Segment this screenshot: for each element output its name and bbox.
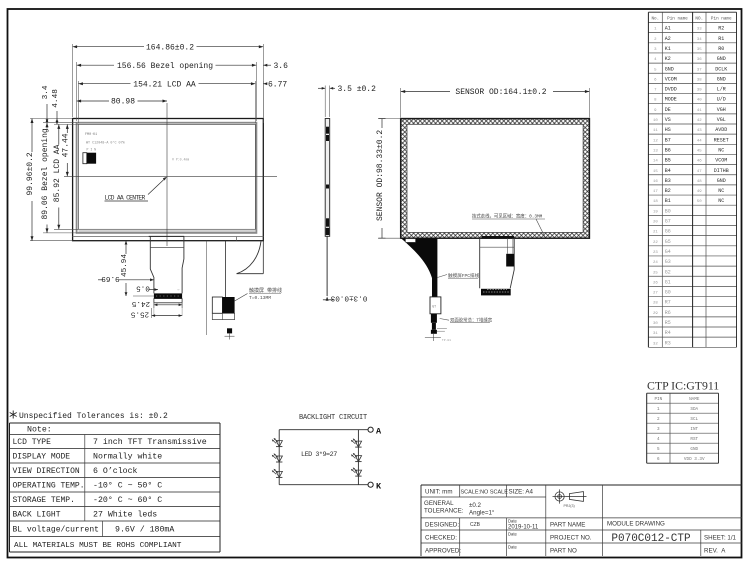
svg-text:GND: GND: [717, 56, 726, 62]
svg-text:R7: R7: [665, 300, 671, 306]
svg-text:技式走线，可见区域：宽度：0.3MM: 技式走线，可见区域：宽度：0.3MM: [472, 213, 543, 220]
svg-text:INT: INT: [690, 427, 698, 432]
svg-text:MODULE DRAWING: MODULE DRAWING: [607, 521, 665, 528]
svg-text:CTP IC:GT911: CTP IC:GT911: [647, 379, 719, 393]
svg-text:89.06 Bezel opening: 89.06 Bezel opening: [41, 128, 50, 219]
svg-text:Unspecified Tolerances is: ±0.: Unspecified Tolerances is: ±0.2: [19, 412, 168, 421]
svg-text:K2: K2: [665, 56, 671, 62]
svg-text:VCOM: VCOM: [715, 158, 727, 164]
svg-text:P070C012-CTP: P070C012-CTP: [611, 533, 691, 545]
svg-text:R2: R2: [718, 26, 724, 32]
svg-text:B7: B7: [665, 137, 671, 143]
svg-text:GT: GT: [432, 305, 436, 309]
svg-text:-10° C ~ 50° C: -10° C ~ 50° C: [93, 481, 162, 490]
svg-text:154.21 LCD AA: 154.21 LCD AA: [133, 80, 196, 89]
svg-text:9.69: 9.69: [101, 274, 120, 282]
svg-text:40: 40: [697, 99, 702, 103]
svg-text:16: 16: [653, 180, 658, 184]
svg-text:PRJ(3): PRJ(3): [564, 504, 575, 508]
svg-text:L/R: L/R: [717, 87, 726, 93]
svg-text:G4: G4: [665, 249, 671, 255]
svg-text:CZB: CZB: [470, 522, 481, 528]
svg-text:FM0·K1: FM0·K1: [85, 133, 97, 137]
svg-text:WT C12048–A 0’C 07%: WT C12048–A 0’C 07%: [86, 141, 126, 146]
svg-text:R3: R3: [665, 340, 671, 346]
svg-text:SHEET: 1/1: SHEET: 1/1: [704, 535, 737, 542]
svg-text:PART NO: PART NO: [550, 548, 577, 555]
svg-text:Pin name: Pin name: [667, 17, 688, 22]
svg-text:49: 49: [697, 190, 702, 194]
svg-text:164.86±0.2: 164.86±0.2: [146, 43, 194, 52]
svg-text:24: 24: [653, 261, 658, 265]
svg-text:43: 43: [697, 129, 702, 133]
svg-text:46: 46: [697, 160, 702, 164]
svg-text:38: 38: [697, 78, 702, 82]
svg-text:Date: Date: [508, 519, 518, 524]
svg-text:SDA: SDA: [690, 407, 698, 412]
svg-text:7 inch TFT Transmissive: 7 inch TFT Transmissive: [93, 437, 207, 447]
svg-text:36: 36: [697, 58, 702, 62]
svg-text:G6: G6: [665, 229, 671, 235]
svg-text:GND: GND: [717, 178, 726, 184]
svg-text:29: 29: [653, 312, 658, 316]
svg-text:LCD TYPE: LCD TYPE: [13, 438, 52, 447]
svg-text:DISPLAY MODE: DISPLAY MODE: [13, 452, 71, 461]
svg-text:K: K: [376, 482, 382, 492]
svg-text:23: 23: [653, 251, 658, 255]
svg-text:SCL: SCL: [690, 417, 698, 422]
svg-text:B5: B5: [665, 158, 671, 164]
svg-text:∞: ∞: [178, 289, 180, 292]
svg-text:B4: B4: [665, 168, 671, 174]
svg-text:G1: G1: [665, 279, 671, 285]
svg-text:NC: NC: [718, 188, 724, 194]
svg-text:50: 50: [697, 200, 702, 204]
svg-text:LCD AA CENTER: LCD AA CENTER: [105, 195, 146, 202]
svg-text:Note:: Note:: [27, 425, 52, 434]
svg-text:B1: B1: [665, 198, 671, 204]
svg-text:Date: Date: [508, 545, 518, 550]
svg-text:OPERATING TEMP.: OPERATING TEMP.: [13, 481, 85, 490]
svg-text:B6: B6: [665, 147, 671, 153]
svg-text:1: 1: [657, 407, 660, 412]
svg-text:-20° C ~ 60° C: -20° C ~ 60° C: [93, 496, 162, 505]
svg-text:27: 27: [653, 292, 658, 296]
svg-text:3.5 ±0.2: 3.5 ±0.2: [338, 85, 377, 94]
svg-text:10: 10: [653, 119, 658, 123]
svg-text:VIEW DIRECTION: VIEW DIRECTION: [13, 467, 80, 476]
svg-text:6: 6: [657, 457, 660, 462]
svg-text:NAME: NAME: [689, 397, 700, 402]
svg-text:47.44: 47.44: [61, 133, 70, 157]
svg-text:B2: B2: [665, 188, 671, 194]
svg-text:G7: G7: [665, 219, 671, 225]
svg-text:R1: R1: [718, 36, 724, 42]
svg-text:B0: B0: [665, 208, 671, 214]
svg-text:B3: B3: [665, 178, 671, 184]
svg-text:APPROVED:: APPROVED:: [425, 548, 461, 555]
svg-text:26: 26: [653, 281, 658, 285]
svg-text:STORAGE TEMP.: STORAGE TEMP.: [13, 496, 75, 505]
svg-text:G5: G5: [665, 239, 671, 245]
svg-text:20: 20: [653, 221, 658, 225]
svg-text:DVDD: DVDD: [665, 87, 677, 93]
svg-text:BACKLIGHT CIRCUIT: BACKLIGHT CIRCUIT: [299, 414, 367, 422]
svg-text:RST: RST: [690, 437, 698, 442]
svg-text:A2: A2: [665, 36, 671, 42]
svg-text:PIN: PIN: [654, 397, 662, 402]
svg-text:30: 30: [653, 322, 658, 326]
svg-text:G0: G0: [665, 290, 671, 296]
svg-text:VS: VS: [665, 117, 671, 123]
svg-text:NC: NC: [718, 198, 724, 204]
svg-text:6 O’clock: 6 O’clock: [93, 466, 138, 476]
svg-text:BACK LIGHT: BACK LIGHT: [13, 510, 61, 519]
svg-text:34: 34: [697, 38, 702, 42]
svg-text:SCALE:NO SCALE: SCALE:NO SCALE: [461, 490, 509, 496]
svg-text:45.94: 45.94: [121, 254, 129, 277]
svg-text:R5: R5: [665, 320, 671, 326]
svg-text:3: 3: [657, 427, 660, 432]
svg-text:SIZE: A4: SIZE: A4: [509, 489, 534, 496]
svg-text:PROJECT NO.: PROJECT NO.: [550, 535, 592, 542]
svg-text:28: 28: [653, 302, 658, 306]
svg-text:A: A: [376, 427, 382, 437]
svg-text:U/D: U/D: [717, 97, 726, 103]
svg-text:37: 37: [697, 68, 702, 72]
svg-text:VDD 3.3V: VDD 3.3V: [684, 457, 705, 462]
svg-text:DCLK: DCLK: [715, 66, 727, 72]
svg-text:GND: GND: [717, 76, 726, 82]
svg-text:35: 35: [697, 48, 702, 52]
svg-text:ALL MATERIALS MUST BE ROHS COM: ALL MATERIALS MUST BE ROHS COMPLIANT: [14, 542, 182, 550]
svg-text:P I N: P I N: [87, 148, 97, 152]
svg-text:GND: GND: [690, 447, 698, 452]
svg-text:NC: NC: [718, 147, 724, 153]
svg-text:Angle=1°: Angle=1°: [469, 510, 495, 517]
svg-text:T=0.13MM: T=0.13MM: [249, 295, 271, 301]
svg-text:No.: No.: [651, 17, 659, 22]
svg-text:# P:0.4mm: # P:0.4mm: [172, 158, 189, 162]
svg-text:SENSOR OD:164.1±0.2: SENSOR OD:164.1±0.2: [455, 88, 546, 97]
svg-text:HS: HS: [665, 127, 671, 133]
svg-text:42: 42: [697, 119, 702, 123]
svg-text:R0: R0: [718, 46, 724, 52]
svg-text:VGH: VGH: [717, 107, 726, 113]
svg-text:45: 45: [697, 149, 702, 153]
svg-text:3.4: 3.4: [42, 85, 50, 99]
svg-text:RESET: RESET: [714, 137, 729, 143]
svg-text:R6: R6: [665, 310, 671, 316]
svg-text:VGL: VGL: [717, 117, 726, 123]
svg-text:18: 18: [653, 200, 658, 204]
svg-text:G2: G2: [665, 269, 671, 275]
svg-text:14: 14: [653, 160, 658, 164]
svg-text:2019-10-11: 2019-10-11: [508, 525, 539, 531]
svg-text:GENERAL: GENERAL: [424, 500, 454, 507]
svg-text:TP.01: TP.01: [442, 339, 451, 342]
svg-text:44: 44: [697, 139, 702, 143]
svg-text:MODE: MODE: [665, 97, 677, 103]
svg-text:48: 48: [697, 180, 702, 184]
svg-text:24.5: 24.5: [131, 299, 150, 307]
svg-text:156.56 Bezel opening: 156.56 Bezel opening: [117, 62, 213, 71]
svg-text:22: 22: [653, 241, 658, 245]
svg-text:±0.2: ±0.2: [469, 502, 482, 509]
svg-text:0.3±0.03: 0.3±0.03: [330, 294, 367, 302]
svg-text:CHECKED:: CHECKED:: [425, 535, 457, 542]
svg-text:VCOM: VCOM: [665, 76, 677, 82]
svg-text:PART NAME: PART NAME: [550, 522, 585, 529]
svg-text:BL voltage/current: BL voltage/current: [13, 525, 99, 534]
svg-text:25.5: 25.5: [130, 310, 149, 318]
svg-text:19: 19: [653, 210, 658, 214]
svg-text:UNIT: mm: UNIT: mm: [425, 489, 453, 496]
svg-text:80.98: 80.98: [111, 98, 135, 107]
svg-text:NO.: NO.: [695, 17, 703, 22]
svg-text:32: 32: [653, 342, 658, 346]
svg-text:0.5: 0.5: [136, 284, 150, 292]
svg-text:47: 47: [697, 170, 702, 174]
svg-text:33: 33: [697, 28, 702, 32]
svg-text:17: 17: [653, 190, 658, 194]
svg-text:99.96±0.2: 99.96±0.2: [26, 152, 35, 195]
svg-text:G3: G3: [665, 259, 671, 265]
svg-text:4: 4: [657, 437, 660, 442]
svg-text:21: 21: [653, 231, 658, 235]
svg-text:31: 31: [653, 332, 658, 336]
svg-text:Pin name: Pin name: [711, 17, 732, 22]
svg-text:3.6: 3.6: [274, 62, 289, 71]
svg-text:13: 13: [653, 149, 658, 153]
svg-text:41: 41: [697, 109, 702, 113]
svg-text:A1: A1: [665, 26, 671, 32]
svg-text:SENSOR OD:98.33±0.2: SENSOR OD:98.33±0.2: [376, 130, 385, 221]
svg-text:Date: Date: [508, 532, 518, 537]
svg-text:9.6V / 180mA: 9.6V / 180mA: [115, 524, 174, 534]
svg-text:15: 15: [653, 170, 658, 174]
svg-text:REV. A: REV. A: [704, 548, 726, 555]
svg-text:GND: GND: [665, 66, 674, 72]
svg-text:27 White leds: 27 White leds: [93, 509, 157, 519]
svg-text:25: 25: [653, 271, 658, 275]
svg-text:11: 11: [653, 129, 658, 133]
svg-text:TOLERANCE:: TOLERANCE:: [424, 508, 464, 515]
svg-text:DESIGNED:: DESIGNED:: [425, 522, 459, 529]
svg-text:LED 3*9=27: LED 3*9=27: [301, 451, 337, 459]
svg-text:5: 5: [657, 447, 660, 452]
svg-text:2: 2: [657, 417, 660, 422]
svg-text:DITHB: DITHB: [714, 168, 729, 174]
svg-text:K1: K1: [665, 46, 671, 52]
svg-text:39: 39: [697, 89, 702, 93]
svg-text:AVDD: AVDD: [715, 127, 727, 133]
svg-text:DE: DE: [665, 107, 671, 113]
svg-text:Normally white: Normally white: [93, 451, 162, 461]
svg-text:12: 12: [653, 139, 658, 143]
svg-text:R4: R4: [665, 330, 671, 336]
svg-text:4.48: 4.48: [52, 89, 60, 108]
svg-text:6.77: 6.77: [268, 80, 287, 89]
